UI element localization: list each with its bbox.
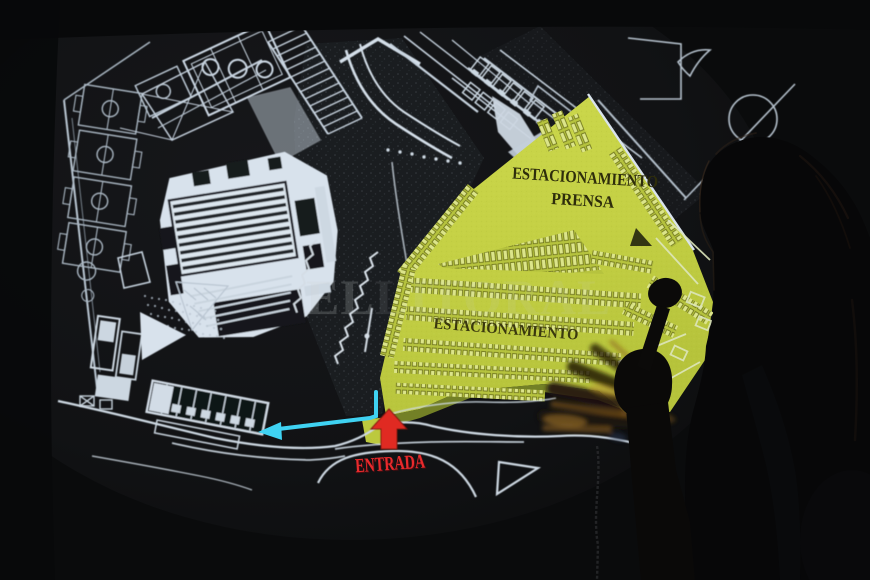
svg-text:PRENSA: PRENSA bbox=[551, 189, 616, 212]
svg-text:EL: EL bbox=[306, 269, 375, 325]
